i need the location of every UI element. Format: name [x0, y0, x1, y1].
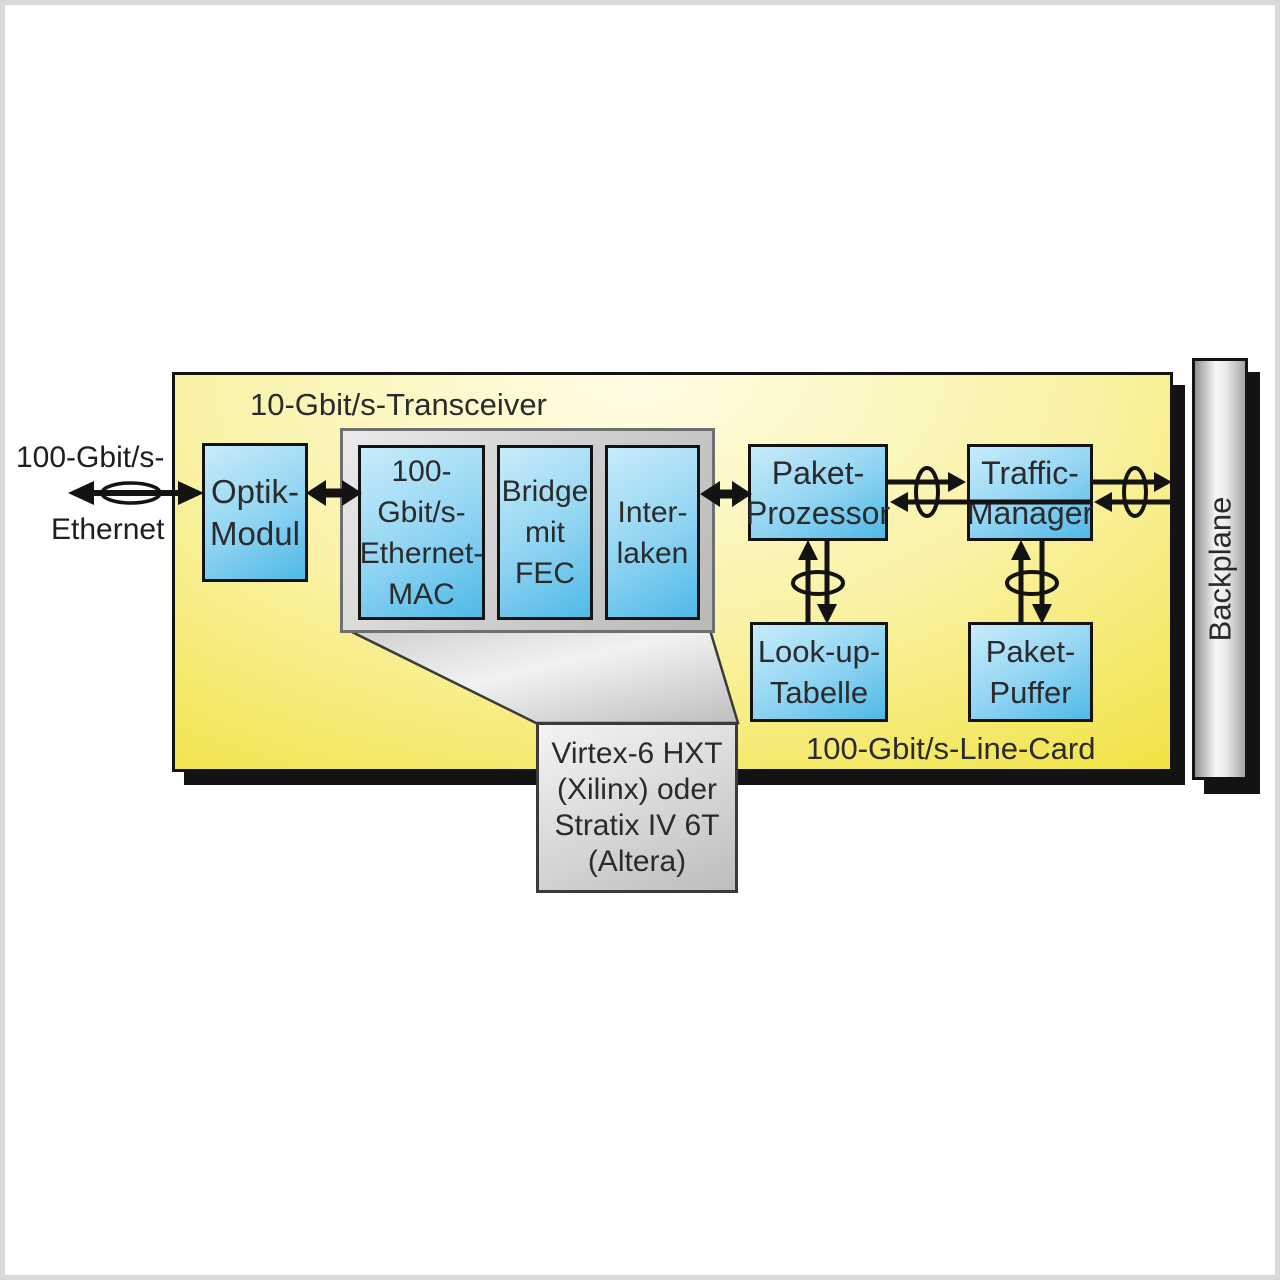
figure-canvas: Virtex-6 HXT (Xilinx) oder Stratix IV 6T… [0, 0, 1280, 1280]
node-lookup-tabelle: Look-up- Tabelle [750, 622, 888, 722]
node-ethernet-mac: 100- Gbit/s- Ethernet- MAC [358, 445, 485, 620]
node-interlaken: Inter- laken [605, 445, 700, 620]
fpga-callout-box: Virtex-6 HXT (Xilinx) oder Stratix IV 6T… [536, 722, 738, 893]
node-bridge-fec: Bridge mit FEC [497, 445, 593, 620]
fpga-callout-funnel [348, 630, 738, 723]
backplane-label: Backplane [1202, 497, 1238, 642]
backplane-bar: Backplane [1192, 358, 1248, 780]
transceiver-title: 10-Gbit/s-Transceiver [250, 387, 547, 423]
external-ethernet-label-bottom: Ethernet [51, 513, 164, 547]
external-ethernet-label-top: 100-Gbit/s- [16, 441, 164, 475]
node-traffic-manager: Traffic- Manager [967, 444, 1093, 541]
node-paket-prozessor: Paket- Prozessor [748, 444, 888, 541]
node-paket-puffer: Paket- Puffer [968, 622, 1093, 722]
node-optik-modul: Optik- Modul [202, 443, 308, 582]
line-card-title: 100-Gbit/s-Line-Card [806, 731, 1095, 767]
